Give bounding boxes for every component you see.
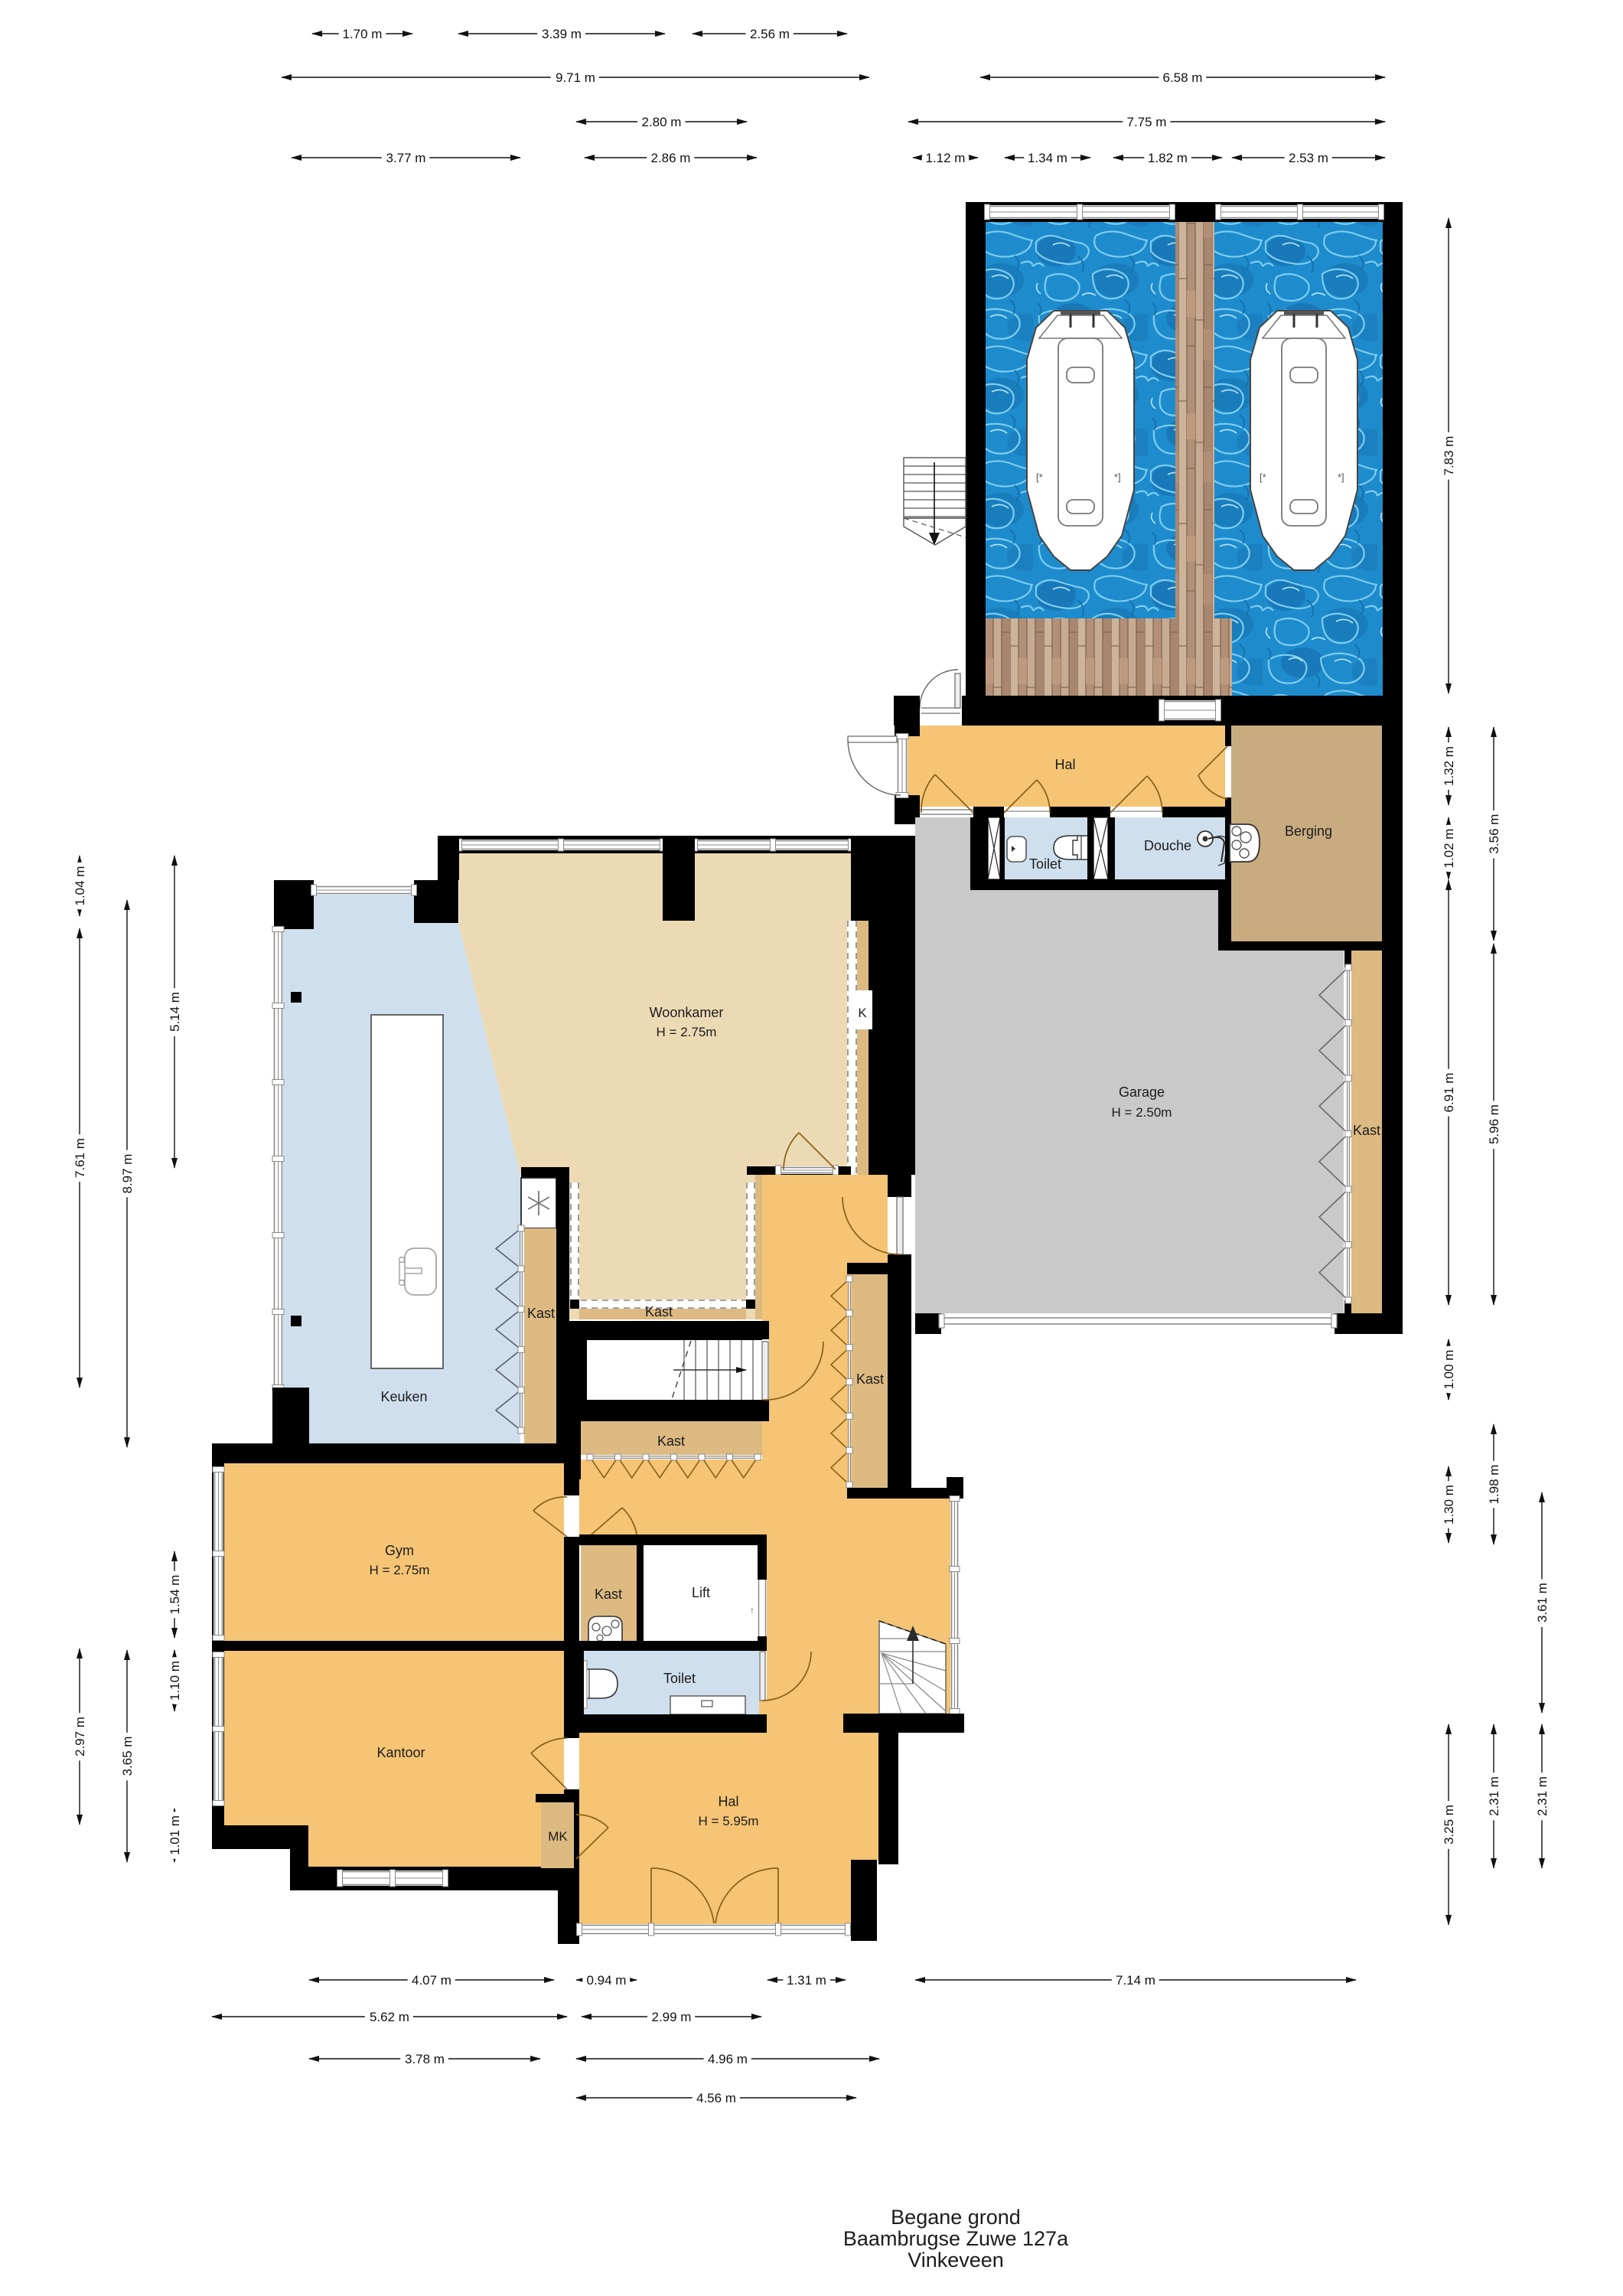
svg-text:5.62 m: 5.62 m [370,2010,409,2024]
svg-text:2.56 m: 2.56 m [750,27,790,41]
svg-text:Berging: Berging [1285,823,1332,839]
svg-text:1.01 m: 1.01 m [168,1815,182,1855]
svg-text:1.98 m: 1.98 m [1487,1465,1501,1505]
svg-text:Baambrugse Zuwe 127a: Baambrugse Zuwe 127a [843,2227,1069,2250]
svg-text:Keuken: Keuken [380,1389,427,1404]
svg-text:Hal: Hal [718,1794,738,1809]
svg-text:3.78 m: 3.78 m [405,2052,445,2066]
svg-text:1.82 m: 1.82 m [1148,151,1188,165]
svg-text:1.00 m: 1.00 m [1442,1350,1456,1390]
svg-text:Toilet: Toilet [663,1671,696,1686]
svg-text:Garage: Garage [1119,1084,1165,1100]
svg-text:Gym: Gym [385,1543,414,1558]
svg-text:H = 5.95m: H = 5.95m [699,1814,759,1828]
svg-text:1.34 m: 1.34 m [1028,151,1067,165]
svg-text:Toilet: Toilet [1029,856,1061,872]
svg-text:Woonkamer: Woonkamer [650,1005,724,1020]
svg-text:Begane grond: Begane grond [891,2206,1021,2229]
svg-text:Kast: Kast [1353,1123,1380,1138]
svg-text:7.75 m: 7.75 m [1127,115,1167,129]
svg-text:9.71 m: 9.71 m [556,70,595,85]
svg-text:3.25 m: 3.25 m [1442,1805,1456,1844]
svg-text:5.96 m: 5.96 m [1487,1104,1501,1144]
svg-text:1.10 m: 1.10 m [168,1661,182,1701]
svg-text:Vinkeveen: Vinkeveen [908,2249,1004,2272]
svg-text:3.61 m: 3.61 m [1535,1583,1550,1623]
svg-text:4.96 m: 4.96 m [708,2052,748,2066]
svg-text:1.70 m: 1.70 m [343,27,383,41]
svg-text:3.39 m: 3.39 m [542,27,582,41]
svg-text:↑: ↑ [750,1605,754,1616]
svg-text:*]: *] [1114,471,1121,483]
svg-text:Kast: Kast [856,1371,884,1387]
svg-text:2.99 m: 2.99 m [652,2010,692,2024]
svg-text:1.31 m: 1.31 m [787,1973,826,1988]
svg-text:H = 2.75m: H = 2.75m [370,1563,430,1577]
svg-text:2.31 m: 2.31 m [1535,1776,1550,1816]
svg-text:1.54 m: 1.54 m [168,1575,182,1615]
svg-text:7.83 m: 7.83 m [1442,436,1456,476]
svg-text:2.80 m: 2.80 m [642,115,682,129]
svg-text:K: K [858,1006,867,1020]
svg-text:1.04 m: 1.04 m [73,866,87,906]
svg-text:Douche: Douche [1144,838,1191,853]
svg-text:Kast: Kast [527,1306,555,1321]
svg-text:3.77 m: 3.77 m [386,151,426,165]
svg-text:3.65 m: 3.65 m [120,1737,135,1776]
svg-text:2.31 m: 2.31 m [1487,1776,1501,1816]
svg-text:4.07 m: 4.07 m [412,1973,451,1988]
svg-text:Kast: Kast [645,1304,673,1319]
svg-text:3.56 m: 3.56 m [1487,814,1501,854]
svg-text:[*: [* [1260,471,1266,483]
svg-text:2.86 m: 2.86 m [651,151,691,165]
svg-text:Kast: Kast [657,1433,685,1449]
svg-text:1.12 m: 1.12 m [926,151,966,165]
svg-text:Hal: Hal [1054,757,1075,772]
svg-text:4.56 m: 4.56 m [696,2091,736,2105]
svg-text:8.97 m: 8.97 m [120,1154,135,1194]
svg-text:6.58 m: 6.58 m [1163,70,1203,85]
svg-text:Lift: Lift [692,1585,710,1600]
svg-text:1.32 m: 1.32 m [1442,746,1456,786]
svg-text:0.94 m: 0.94 m [587,1973,627,1988]
svg-text:Kast: Kast [595,1587,622,1602]
svg-text:MK: MK [548,1829,568,1844]
svg-text:[*: [* [1036,471,1043,483]
svg-text:7.61 m: 7.61 m [73,1138,87,1178]
svg-text:2.53 m: 2.53 m [1289,151,1328,165]
svg-text:1.30 m: 1.30 m [1442,1485,1456,1525]
svg-text:H = 2.75m: H = 2.75m [657,1025,717,1039]
svg-text:5.14 m: 5.14 m [168,992,182,1032]
svg-text:7.14 m: 7.14 m [1116,1973,1155,1988]
svg-text:H = 2.50m: H = 2.50m [1112,1105,1172,1120]
svg-text:6.91 m: 6.91 m [1442,1073,1456,1113]
svg-text:*]: *] [1338,471,1344,483]
svg-text:Kantoor: Kantoor [376,1745,425,1760]
svg-text:1.02 m: 1.02 m [1442,829,1456,869]
svg-text:2.97 m: 2.97 m [73,1717,87,1756]
